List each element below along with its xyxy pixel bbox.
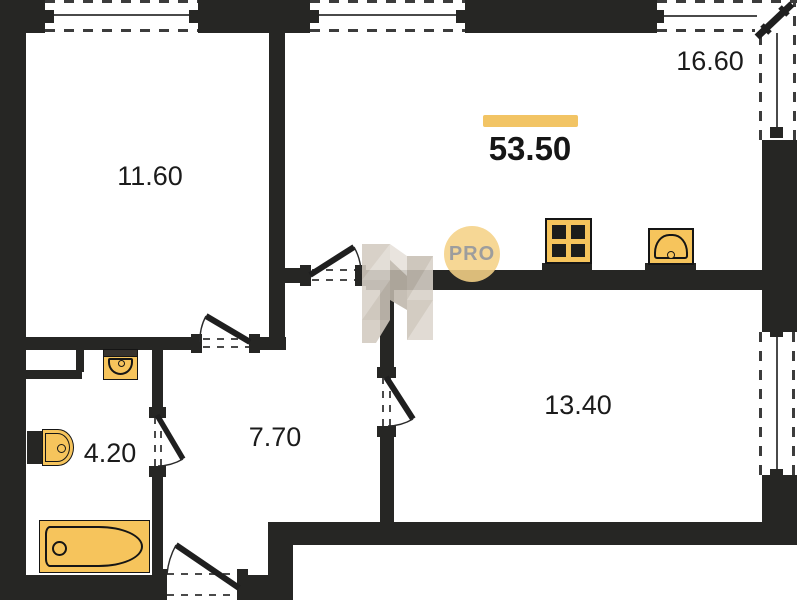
door-swing-arc [388, 419, 413, 426]
door-swing-arc [158, 459, 183, 466]
door-leaf [386, 377, 413, 419]
toilet-drain [57, 444, 66, 453]
pro-logo-badge: PRO [444, 226, 500, 282]
sink-drain [667, 251, 675, 259]
door-leaf [176, 545, 239, 588]
door-leaf [157, 415, 183, 459]
floor-plan: PRO 53.50 11.60 16.60 13.40 7.70 4.20 [0, 0, 797, 600]
door-swing-arc [167, 545, 176, 574]
door-swing-arc [354, 247, 361, 274]
door-leaf [310, 247, 354, 275]
plan-overlay [0, 0, 797, 600]
stove-base [542, 263, 592, 276]
kitchen-sink-icon [648, 228, 694, 265]
bathroom-sink-icon [103, 349, 138, 380]
sink-drain [118, 360, 125, 367]
pro-logo-text: PRO [449, 243, 495, 266]
bathtub-drain [52, 541, 67, 556]
toilet-tank [27, 431, 42, 464]
developer-watermark-logo [362, 244, 433, 343]
sink-counter [104, 350, 137, 357]
window-sash [757, 4, 792, 37]
door-swing-arc [200, 316, 206, 342]
stove-icon [545, 218, 592, 264]
bathtub-icon [39, 520, 150, 573]
door-leaf [206, 316, 250, 342]
toilet-icon [42, 429, 74, 466]
